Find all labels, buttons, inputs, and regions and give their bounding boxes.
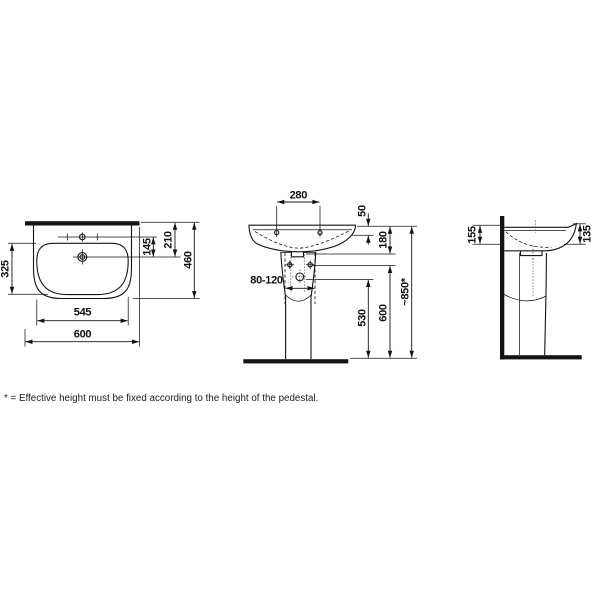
side-view-linework [473, 216, 586, 359]
dim-label-280: 280 [290, 190, 307, 201]
floor-bar-side [500, 355, 582, 359]
dim-label-600-top-view: 600 [74, 329, 91, 340]
wall-bar [500, 216, 504, 359]
pedestal-curve-side [504, 295, 546, 301]
wall-edge-bar [25, 221, 140, 225]
drain-socket-side [521, 251, 543, 256]
dim-label-80-120: 80-120 [250, 275, 282, 286]
dim-label-460: 460 [183, 251, 194, 268]
dim-label-145: 145 [142, 238, 153, 255]
pedestal-front-curve [286, 295, 311, 301]
bowl-hidden-line-side [506, 232, 552, 248]
dim-label-545: 545 [74, 308, 91, 319]
dim-label-50: 50 [357, 205, 368, 217]
pedestal-left-edge [281, 252, 286, 359]
drain-socket [292, 252, 304, 257]
pedestal-front-edge-side [545, 253, 547, 355]
dim-label-325: 325 [0, 260, 11, 277]
technical-drawing-page: 325 545 600 145 210 460 280 50 180 80-12… [0, 0, 600, 600]
pedestal-right-edge [311, 252, 316, 359]
dim-label-210: 210 [164, 231, 175, 248]
dim-label-180: 180 [379, 231, 390, 248]
dim-label-530: 530 [357, 309, 368, 326]
drawing-canvas [0, 0, 600, 600]
dim-label-850: ~850* [400, 278, 411, 306]
footnote-text: * = Effective height must be fixed accor… [4, 393, 318, 405]
dim-label-600-front-view: 600 [379, 304, 390, 321]
floor-bar [243, 359, 348, 363]
dim-label-155: 155 [467, 226, 478, 243]
dim-label-135: 135 [583, 225, 594, 242]
